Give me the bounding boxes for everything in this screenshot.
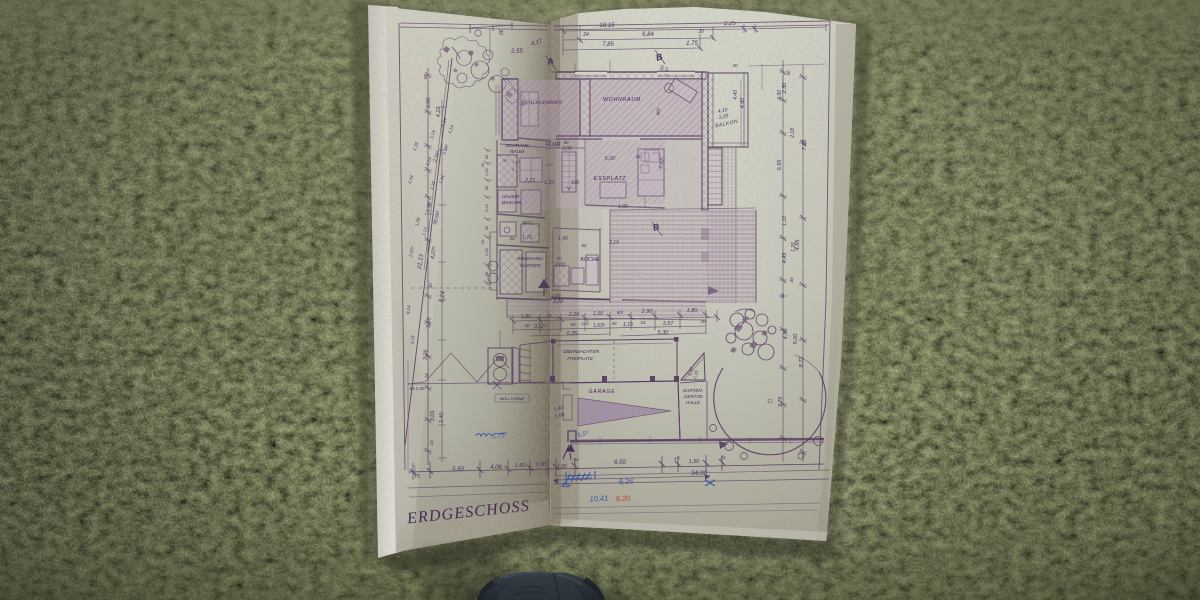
svg-text:30: 30 — [497, 29, 503, 35]
svg-text:1,50: 1,50 — [416, 386, 425, 391]
svg-text:SCHRANK-: SCHRANK- — [505, 143, 530, 149]
svg-text:3,57: 3,57 — [663, 321, 675, 327]
svg-text:7,85: 7,85 — [602, 42, 614, 48]
svg-text:24: 24 — [719, 455, 726, 460]
svg-text:60¹: 60¹ — [617, 310, 624, 315]
svg-text:1,00: 1,00 — [557, 464, 567, 470]
svg-text:3,00: 3,00 — [426, 97, 432, 109]
svg-text:2,23: 2,23 — [524, 178, 535, 184]
svg-text:HAUSW.: HAUSW. — [502, 194, 520, 199]
svg-text:90: 90 — [484, 225, 489, 230]
svg-text:2,00: 2,00 — [554, 262, 565, 268]
svg-text:10,41: 10,41 — [589, 494, 608, 504]
svg-text:2,00: 2,00 — [561, 146, 572, 152]
svg-text:ESSPLATZ: ESSPLATZ — [594, 176, 627, 182]
svg-text:24: 24 — [572, 457, 579, 462]
svg-text:30: 30 — [700, 319, 706, 324]
svg-text:W.C.: W.C. — [523, 220, 533, 226]
svg-text:70: 70 — [556, 256, 562, 261]
svg-text:2,02: 2,02 — [484, 167, 489, 177]
svg-text:98: 98 — [484, 271, 489, 276]
svg-text:8,26: 8,26 — [618, 477, 634, 487]
svg-text:2,26: 2,26 — [568, 312, 581, 318]
svg-text:50: 50 — [570, 322, 576, 327]
svg-text:6,84: 6,84 — [642, 32, 654, 38]
svg-text:MASCHR.: MASCHR. — [502, 200, 523, 205]
svg-text:30: 30 — [509, 236, 515, 241]
svg-text:GARTEN-: GARTEN- — [683, 388, 704, 393]
svg-text:1,25: 1,25 — [544, 180, 554, 186]
svg-text:GARDER.: GARDER. — [520, 263, 542, 269]
svg-text:24: 24 — [582, 32, 589, 38]
svg-text:1,63⁵: 1,63⁵ — [593, 323, 605, 329]
svg-text:24: 24 — [639, 320, 646, 325]
svg-text:5,50: 5,50 — [452, 467, 464, 473]
svg-text:5,55: 5,55 — [777, 159, 783, 171]
svg-text:30: 30 — [480, 239, 485, 244]
svg-text:30: 30 — [732, 63, 738, 68]
svg-text:4,45: 4,45 — [782, 252, 788, 264]
svg-text:7,65: 7,65 — [802, 139, 808, 151]
svg-text:3,16: 3,16 — [410, 335, 416, 345]
svg-text:5,00: 5,00 — [605, 156, 617, 162]
svg-text:RAUM: RAUM — [510, 149, 524, 155]
svg-text:1,85: 1,85 — [521, 314, 531, 320]
svg-text:1,75: 1,75 — [686, 41, 698, 47]
svg-text:9,24: 9,24 — [440, 290, 447, 303]
svg-text:4,50: 4,50 — [783, 328, 789, 340]
svg-text:1,45: 1,45 — [558, 236, 568, 242]
svg-text:6,50: 6,50 — [614, 460, 626, 466]
svg-text:KÜCHE: KÜCHE — [580, 256, 600, 263]
svg-text:24: 24 — [634, 154, 641, 159]
svg-text:18,15: 18,15 — [599, 23, 615, 29]
svg-text:30: 30 — [480, 162, 485, 167]
svg-text:34,00: 34,00 — [691, 470, 708, 477]
svg-text:90: 90 — [563, 140, 569, 145]
svg-text:99: 99 — [484, 185, 489, 190]
svg-text:100: 100 — [571, 180, 580, 186]
svg-text:1,00: 1,00 — [618, 204, 628, 210]
svg-text:30: 30 — [789, 277, 794, 283]
svg-text:9,24: 9,24 — [406, 305, 412, 315]
svg-text:3,75: 3,75 — [778, 396, 784, 408]
svg-text:3,16: 3,16 — [426, 316, 433, 328]
svg-text:1,15: 1,15 — [623, 322, 633, 328]
svg-text:2,25: 2,25 — [723, 21, 736, 27]
svg-text:1,50: 1,50 — [593, 311, 603, 317]
svg-text:MÜLLTONNE: MÜLLTONNE — [500, 396, 525, 401]
svg-text:1,00: 1,00 — [536, 462, 548, 468]
svg-text:HALLE: HALLE — [686, 400, 701, 405]
svg-text:30: 30 — [698, 29, 704, 35]
svg-text:3,12⁵: 3,12⁵ — [534, 324, 546, 330]
svg-text:2,62: 2,62 — [484, 247, 489, 257]
svg-text:WOHNRAUM: WOHNRAUM — [603, 97, 641, 103]
svg-text:4,40: 4,40 — [733, 90, 739, 100]
svg-text:5,75: 5,75 — [491, 433, 505, 441]
svg-text:1,50: 1,50 — [515, 463, 527, 469]
svg-text:4,06: 4,06 — [490, 465, 502, 471]
svg-text:50: 50 — [423, 74, 428, 80]
svg-text:2,26: 2,26 — [484, 203, 489, 213]
svg-text:75: 75 — [546, 313, 552, 318]
svg-text:50: 50 — [780, 293, 785, 299]
svg-text:2,90: 2,90 — [641, 309, 654, 315]
svg-text:3,26: 3,26 — [423, 348, 430, 360]
svg-text:90: 90 — [484, 154, 489, 159]
svg-text:24: 24 — [429, 440, 434, 447]
svg-text:3,40: 3,40 — [439, 412, 445, 424]
svg-text:2,15: 2,15 — [608, 240, 619, 246]
svg-text:4,22: 4,22 — [436, 107, 442, 118]
svg-text:2,18: 2,18 — [790, 128, 796, 139]
svg-text:115: 115 — [581, 321, 589, 326]
svg-text:GARAGE: GARAGE — [589, 389, 616, 395]
svg-text:1,10: 1,10 — [782, 216, 788, 226]
svg-text:FREIPLATZ: FREIPLATZ — [567, 356, 594, 362]
svg-text:ÜBERDACHTER: ÜBERDACHTER — [563, 348, 600, 355]
svg-text:50: 50 — [786, 70, 791, 76]
svg-text:1,00: 1,00 — [552, 293, 561, 298]
svg-text:1¹⁵: 1¹⁵ — [674, 456, 680, 461]
svg-text:6,35: 6,35 — [567, 331, 579, 337]
svg-text:40: 40 — [611, 321, 617, 326]
svg-text:8,72: 8,72 — [799, 357, 805, 368]
svg-text:4,80: 4,80 — [740, 97, 746, 109]
svg-text:SCHLAFZIMMER: SCHLAFZIMMER — [521, 100, 562, 106]
svg-text:2,55: 2,55 — [510, 49, 523, 55]
svg-text:84: 84 — [409, 386, 415, 391]
svg-text:30: 30 — [428, 283, 433, 289]
svg-text:1,76: 1,76 — [522, 235, 532, 241]
svg-text:GERÄTE-: GERÄTE- — [684, 393, 705, 399]
svg-text:5,30: 5,30 — [658, 330, 670, 336]
svg-text:5,00: 5,00 — [793, 333, 799, 345]
svg-text:4,30: 4,30 — [777, 90, 783, 100]
svg-text:2,28: 2,28 — [552, 299, 563, 305]
svg-text:75: 75 — [414, 474, 420, 480]
svg-text:60: 60 — [581, 243, 587, 248]
svg-text:1,80: 1,80 — [687, 308, 699, 314]
svg-text:3,05: 3,05 — [430, 410, 436, 422]
svg-text:4,55: 4,55 — [795, 239, 801, 251]
svg-text:30: 30 — [524, 323, 530, 328]
svg-text:1,50: 1,50 — [689, 459, 701, 465]
svg-text:WINDFANG: WINDFANG — [517, 256, 543, 262]
svg-text:FLUR: FLUR — [546, 142, 560, 148]
svg-text:9,20: 9,20 — [615, 494, 631, 504]
svg-text:24: 24 — [424, 373, 430, 380]
